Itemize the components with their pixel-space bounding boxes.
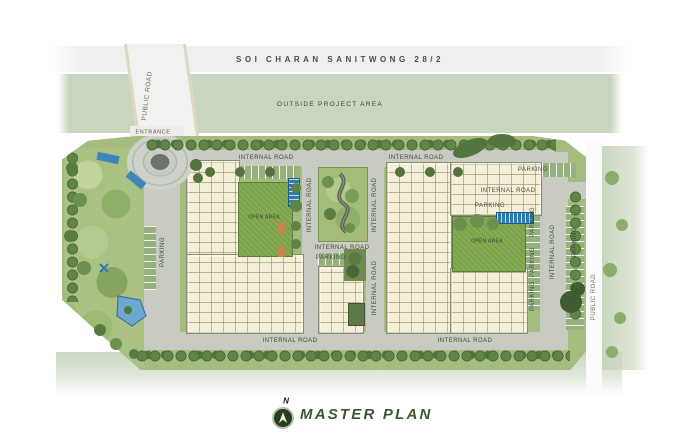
internal-road-label: INTERNAL ROAD	[307, 178, 313, 233]
parking-label: PARKING	[530, 207, 536, 237]
outside-right-trees	[603, 171, 628, 358]
internal-road-label: INTERNAL ROAD	[389, 155, 444, 161]
parking-label: PARKING	[530, 281, 536, 311]
courtyard-b-trees	[453, 214, 499, 231]
internal-road-label: INTERNAL ROAD	[438, 338, 493, 344]
parking-label: PARKING	[530, 247, 536, 277]
parking-label: PARKING	[518, 167, 548, 173]
big-tree-southeast	[560, 282, 585, 313]
master-plan-canvas: SOI CHARAN SANITWONG 28/2	[0, 0, 680, 448]
internal-road-label: INTERNAL ROAD	[239, 155, 294, 161]
north-label: N	[283, 397, 289, 406]
internal-road-label: INTERNAL ROAD	[263, 338, 318, 344]
parking-label: PARKING	[160, 237, 166, 267]
internal-road-label: INTERNAL ROAD	[481, 188, 536, 194]
parking-label: PARKING	[572, 227, 578, 257]
master-plan-title: MASTER PLAN	[300, 406, 433, 423]
garden-trees	[64, 162, 139, 359]
corner-hedges	[450, 134, 516, 162]
open-area-label: OPEN AREA	[471, 240, 503, 245]
entrance-label: ENTRANCE	[135, 130, 170, 136]
north-arrow-icon	[276, 411, 290, 425]
internal-road-label: INTERNAL ROAD	[315, 245, 370, 251]
outside-area-label: OUTSIDE PROJECT AREA	[277, 102, 383, 109]
landscape-overlay	[0, 0, 680, 448]
public-road-right-label: PUBLIC ROAD	[591, 274, 597, 320]
north-compass-icon	[272, 407, 294, 429]
courtyard-a-trees	[278, 183, 302, 257]
internal-road-label: INTERNAL ROAD	[372, 178, 378, 233]
open-area-label: OPEN AREA	[248, 216, 280, 221]
parking-label: PARKING	[475, 203, 505, 209]
internal-road-label: INTERNAL ROAD	[372, 261, 378, 316]
internal-road-label: INTERNAL ROAD	[550, 225, 556, 280]
garden-pond	[96, 152, 146, 326]
parking-label: PARKING	[316, 255, 346, 261]
